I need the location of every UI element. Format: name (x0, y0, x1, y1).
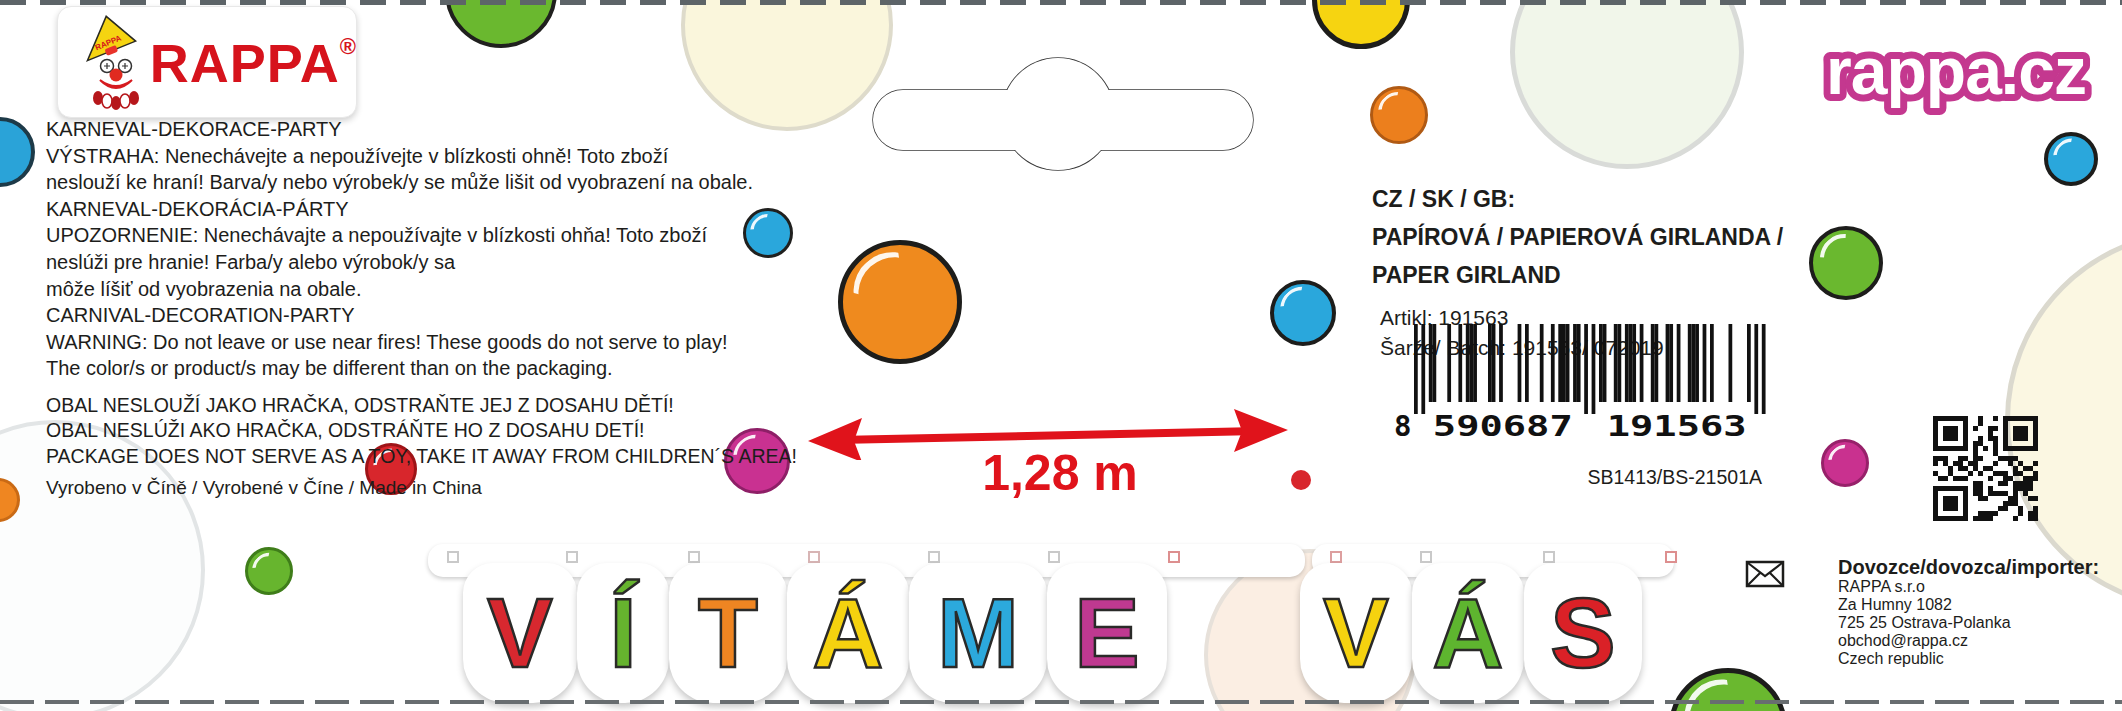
garland-letter-card: E (1047, 563, 1167, 703)
origin-line: Vyrobeno v Číně / Vyrobené v Číne / Made… (46, 477, 482, 499)
garland-letter-card: Í (577, 563, 669, 703)
strip-hole (447, 551, 459, 563)
perforation-bottom (0, 700, 2122, 704)
bubble (1669, 668, 1787, 711)
text-line: Za Humny 1082 (1838, 596, 2099, 614)
garland-letter: M (937, 563, 1019, 703)
garland-letter-card: V (1300, 563, 1412, 703)
bubble-highlight (1313, 0, 1402, 38)
bubble (1821, 439, 1869, 487)
garland-letter-card: M (909, 563, 1047, 703)
bubble-highlight (1822, 437, 1869, 484)
text-line: Czech republic (1838, 650, 2099, 668)
importer-heading: Dovozce/dovozca/importer: (1838, 556, 2099, 578)
bubble (245, 547, 293, 595)
garland-letter-card: Á (787, 563, 909, 703)
bubble (1270, 280, 1336, 346)
strip-hole (566, 551, 578, 563)
warning-text-block: KARNEVAL-DEKORACE-PARTYVÝSTRAHA: Nenechá… (46, 116, 753, 382)
garland-letter: V (1323, 563, 1388, 703)
bubble-highlight (2045, 131, 2096, 182)
brand-name: RAPPA (150, 33, 340, 93)
garland-letter: E (1074, 563, 1139, 703)
garland-letter-card: Á (1412, 563, 1524, 703)
package-warning-block: OBAL NESLOUŽÍ JAKO HRAČKA, ODSTRAŇTE JEJ… (46, 393, 797, 469)
text-line: PAPER GIRLAND (1372, 256, 1783, 294)
bubble (681, 0, 893, 131)
bubble-highlight (0, 115, 31, 180)
bubble (2044, 132, 2098, 186)
bubble (1510, 0, 1744, 169)
bubble (1809, 226, 1883, 300)
text-line: PAPÍROVÁ / PAPIEROVÁ GIRLANDA / (1372, 218, 1783, 256)
brand-logo-box: RAPPA RAPPA® (57, 6, 357, 118)
bubble-highlight (838, 236, 950, 349)
brand-wordmark: RAPPA® (150, 34, 356, 90)
text-line: RAPPA s.r.o (1838, 578, 2099, 596)
strip-hole (1420, 551, 1432, 563)
ean13-barcode: 8590687191563 (1392, 322, 1772, 446)
text-line: 725 25 Ostrava-Polanka (1838, 614, 2099, 632)
garland-letter: S (1550, 563, 1615, 703)
strip-hole (1330, 551, 1342, 563)
bubble (838, 240, 962, 364)
text-line: OBAL NESLÚŽI AKO HRAČKA, ODSTRÁŇTE HO Z … (46, 418, 797, 443)
garland-letter-card: T (669, 563, 787, 703)
clown-icon: RAPPA (70, 12, 150, 112)
garland-letter: T (698, 563, 758, 703)
text-line: UPOZORNENIE: Nenechávajte a nepoužívajte… (46, 222, 753, 249)
svg-text:8: 8 (1394, 409, 1411, 443)
garland-letter: Á (1433, 563, 1504, 703)
importer-address: RAPPA s.r.oZa Humny 1082725 25 Ostrava-P… (1838, 578, 2099, 668)
garland-letter: Í (609, 563, 636, 703)
text-line: neslúži pre hranie! Farba/y alebo výrobo… (46, 249, 753, 276)
strip-hole (1665, 551, 1677, 563)
strip-hole (688, 551, 700, 563)
bubble-highlight (1271, 278, 1332, 339)
strip-hole (1543, 551, 1555, 563)
bubble (445, 0, 557, 48)
registered-mark: ® (340, 34, 356, 59)
product-langs: CZ / SK / GB: (1372, 180, 1783, 218)
strip-hole (1048, 551, 1060, 563)
text-line: môže líšiť od vyobrazenia na obale. (46, 276, 753, 303)
text-line: KARNEVAL-DEKORÁCIA-PÁRTY (46, 196, 753, 223)
text-line: obchod@rappa.cz (1838, 632, 2099, 650)
hang-hole-cutout (865, 50, 1265, 180)
text-line: KARNEVAL-DEKORACE-PARTY (46, 116, 753, 143)
length-label: 1,28 m (960, 444, 1160, 502)
garland-letter: V (487, 563, 552, 703)
product-title: PAPÍROVÁ / PAPIEROVÁ GIRLANDA /PAPER GIR… (1372, 218, 1783, 294)
text-line: PACKAGE DOES NOT SERVE AS A TOY, TAKE IT… (46, 444, 797, 469)
bubble (1370, 86, 1428, 144)
svg-text:590687: 590687 (1433, 409, 1573, 443)
text-line: The color/s or product/s may be differen… (46, 355, 753, 382)
bubble (0, 117, 35, 187)
red-dot (1291, 470, 1311, 490)
strip-hole (808, 551, 820, 563)
text-line: OBAL NESLOUŽÍ JAKO HRAČKA, ODSTRAŇTE JEJ… (46, 393, 797, 418)
package-label: RAPPA RAPPA® KARNEVAL-DEK (0, 0, 2122, 711)
bubble-highlight (1370, 84, 1426, 140)
bubble-highlight (246, 545, 293, 592)
bubble-highlight (1810, 224, 1879, 293)
product-code: SB1413/BS-21501A (1402, 466, 1762, 489)
perforation-top (0, 0, 2122, 5)
strip-hole (1168, 551, 1180, 563)
svg-text:191563: 191563 (1607, 409, 1747, 443)
qr-code (1933, 416, 2038, 521)
text-line: CARNIVAL-DECORATION-PARTY (46, 302, 753, 329)
text-line: WARNING: Do not leave or use near fires!… (46, 329, 753, 356)
garland-letter-card: S (1524, 563, 1642, 703)
site-logo: rappa.cz (1790, 18, 2122, 118)
garland-letter: Á (813, 563, 884, 703)
importer-block: Dovozce/dovozca/importer: RAPPA s.r.oZa … (1838, 556, 2099, 668)
text-line: VÝSTRAHA: Nenechávejte a nepoužívejte v … (46, 143, 753, 170)
garland-letter-card: V (463, 563, 577, 703)
text-line: neslouží ke hraní! Barva/y nebo výrobek/… (46, 169, 753, 196)
bubble (1312, 0, 1410, 49)
envelope-icon (1745, 560, 1785, 588)
strip-hole (928, 551, 940, 563)
site-logo-text: rappa.cz (1826, 34, 2086, 108)
